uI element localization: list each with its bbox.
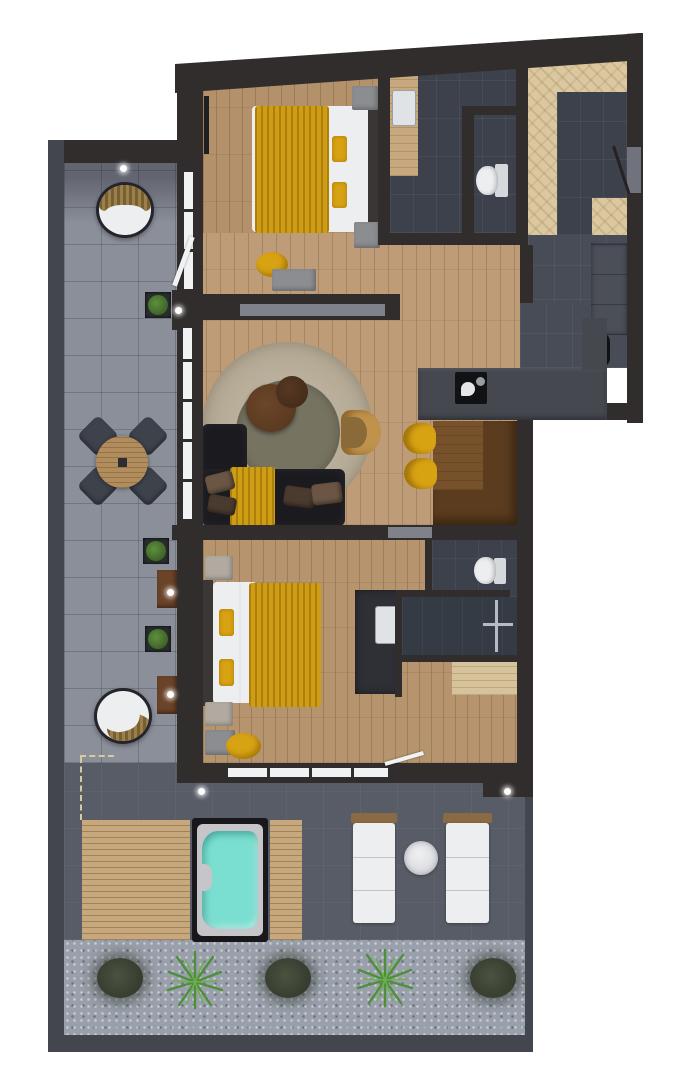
sun-lounger-left [351, 813, 397, 923]
bed2-pillow-yellow-2 [219, 659, 234, 686]
deck-border-dashed-v [80, 757, 84, 820]
lounger-cushion [446, 823, 489, 923]
wall-right-upper [627, 33, 643, 423]
kitchen-counter [418, 368, 607, 420]
wall-bathroom1-east [516, 65, 528, 245]
bed1-pillow-yellow-2 [332, 182, 347, 208]
toilet2-bowl [474, 557, 496, 584]
outdoor-light-3 [167, 589, 174, 596]
lounger-headboard [351, 813, 397, 823]
wall-shower2-north [402, 590, 510, 597]
sliding-door-bedroom2 [225, 768, 388, 777]
sofa-pillow-4 [311, 481, 343, 505]
shower2-fixture-h [483, 623, 513, 626]
door-gap-bedroom2 [388, 527, 432, 538]
bedroom2-pouf [226, 733, 261, 759]
armchair-seat [343, 417, 367, 448]
hanging-chair-bottom [94, 688, 152, 744]
pool-deck-left [82, 820, 190, 940]
lounger-cushion [353, 823, 395, 923]
terrace-border-bottom [48, 1035, 533, 1052]
lounger-headboard [443, 813, 492, 823]
hanging-chair-top [96, 182, 154, 238]
garden-bush-3 [470, 958, 516, 998]
plant [148, 629, 168, 649]
sliding-door-living [183, 328, 192, 522]
sofa-throw-blanket [230, 467, 275, 526]
entry-inner-slate-2 [557, 198, 592, 235]
planter-box-2 [143, 538, 169, 564]
bathroom1-sink [392, 90, 416, 126]
outdoor-light-2 [175, 307, 182, 314]
planter-box-1 [145, 292, 171, 318]
wall-terrace-top [48, 140, 190, 163]
pocket-door-bedroom1 [240, 304, 385, 316]
wall-bathroom1-south [378, 233, 528, 245]
plant [148, 295, 168, 315]
wall-bathroom1-partition-v [462, 112, 474, 233]
bed1-blanket [255, 106, 329, 233]
outdoor-light-1 [120, 165, 127, 172]
bedroom1-bench [272, 269, 316, 291]
garden-bush-1 [97, 958, 143, 998]
kitchen-floor [520, 303, 582, 368]
bed2-headboard [203, 580, 213, 706]
garden-grass-plant-2 [353, 946, 417, 1010]
bed1-nightstand-bottom [354, 222, 380, 248]
round-side-table [404, 841, 438, 875]
bed2-pillow-yellow-1 [219, 609, 234, 636]
bedroom1-tv-panel [204, 96, 209, 154]
plant [146, 541, 166, 561]
wall-bathroom1-west [378, 65, 390, 245]
planter-box-3 [145, 626, 171, 652]
bed2-nightstand-top [205, 556, 233, 580]
bed2-blanket [249, 583, 321, 707]
outdoor-light-5 [198, 788, 205, 795]
wall-bedroom2-north [172, 525, 520, 540]
grass-plant-icon [163, 948, 227, 1012]
kitchen-counter-return [582, 318, 607, 370]
terrace-dining-table [96, 436, 148, 488]
chair-cushion [103, 205, 147, 233]
wall-shower2-south [402, 655, 517, 662]
bed1-pillow-yellow-1 [332, 136, 347, 162]
wall-hall-west [520, 245, 533, 303]
coffee-table-small [276, 376, 308, 408]
shower2-fixture-v [495, 600, 498, 652]
wall-toilet2-west [425, 540, 432, 597]
hot-tub-step [200, 864, 212, 891]
side-table-1 [157, 570, 177, 608]
garden-bush-2 [265, 958, 311, 998]
shower2-floor [402, 597, 517, 655]
bed1-nightstand-top [352, 86, 378, 110]
wall-step [607, 403, 643, 420]
shower2-bench [452, 662, 517, 695]
wall-shower2-west [395, 590, 402, 697]
toilet1-bowl [476, 166, 498, 195]
dining-chair-yellow-2 [404, 458, 437, 489]
dining-table-top [433, 421, 483, 490]
floor-plan-canvas [0, 0, 688, 1079]
kitchen-kettle [461, 382, 475, 396]
grass-plant-icon [353, 946, 417, 1010]
entry-door-opening [627, 147, 641, 193]
kitchen-pot [476, 377, 485, 386]
pool-deck-right [270, 820, 302, 940]
armchair [341, 410, 381, 455]
deck-border-dashed-h [80, 755, 114, 759]
sun-lounger-right [443, 813, 492, 923]
entry-inner-slate [557, 92, 627, 198]
garden-grass-plant-1 [163, 948, 227, 1012]
wall-right-lower [517, 420, 533, 797]
bed2-nightstand-bottom [205, 702, 233, 726]
table-center-detail [118, 458, 127, 467]
terrace-edge-right [525, 797, 533, 1035]
outdoor-light-6 [504, 788, 511, 795]
window-bedroom1 [184, 170, 193, 292]
dining-chair-yellow-1 [403, 423, 436, 454]
terrace-border-left [48, 140, 64, 1052]
outdoor-light-4 [167, 691, 174, 698]
